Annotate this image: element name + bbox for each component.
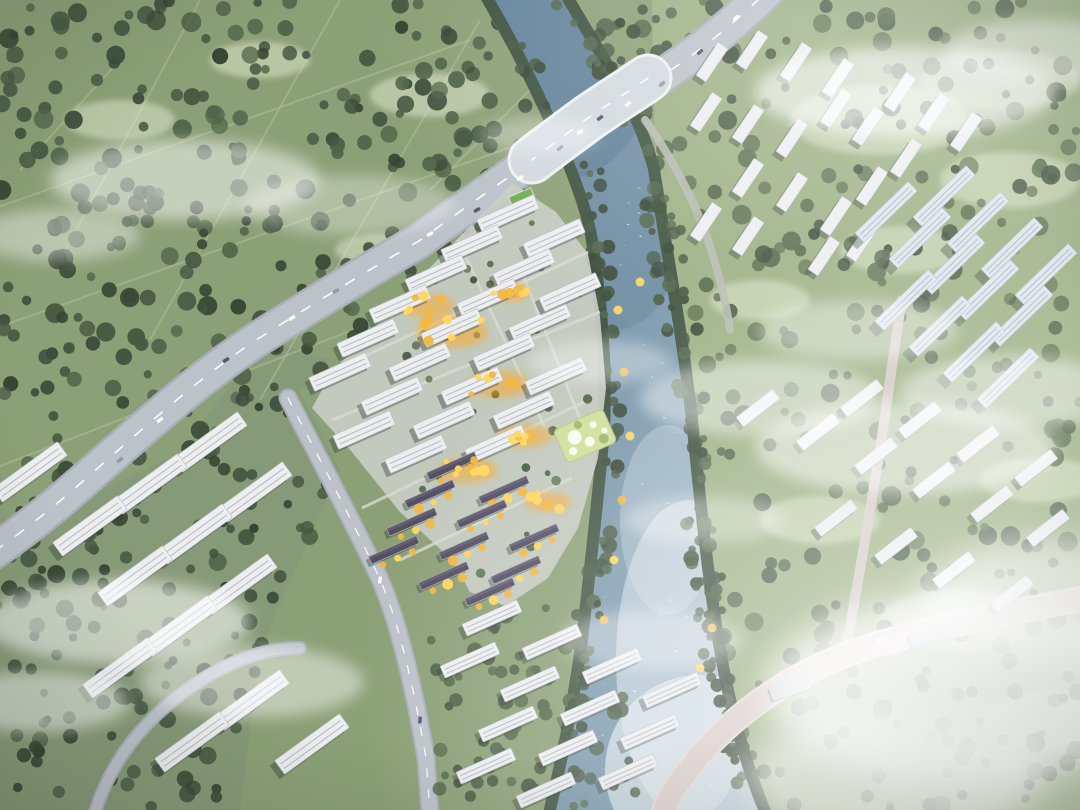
aerial-rendering-image — [0, 0, 1080, 810]
atmosphere-overlays — [0, 0, 1080, 810]
masterplan-aerial-scene — [0, 0, 1080, 810]
